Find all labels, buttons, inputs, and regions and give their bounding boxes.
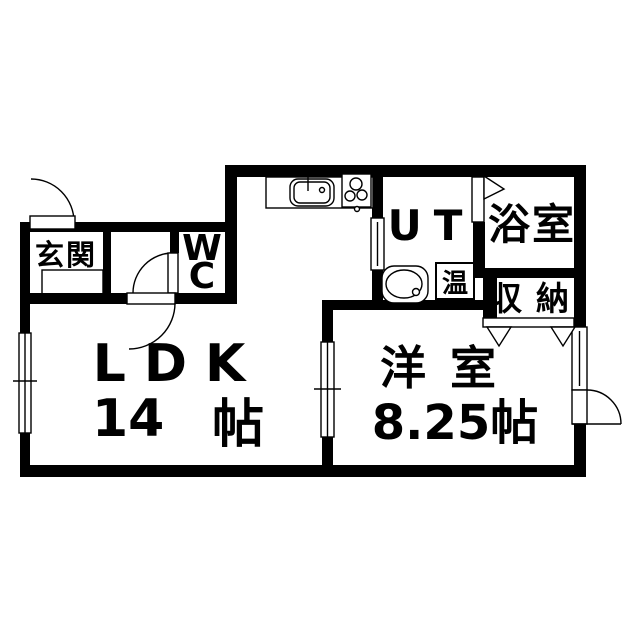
wc-letter: C xyxy=(189,263,215,291)
water-heater-label: 温 xyxy=(442,263,468,300)
room-size-ldk: 14 帖 xyxy=(92,392,264,446)
water-heater-box: 温 xyxy=(435,262,475,300)
window-left-icon xyxy=(13,333,37,433)
sink-drain xyxy=(320,188,325,193)
ldk-size-unit: 帖 xyxy=(212,382,264,457)
floor-plan: 玄関 W C LDK 14 帖 UT 浴室 温 収納 洋室 8.25帖 xyxy=(0,0,639,640)
western-door-leaf xyxy=(572,390,587,424)
ldk-size-value: 14 xyxy=(92,389,164,449)
room-label-bath: 浴室 xyxy=(488,197,576,245)
wc-door-icon xyxy=(133,253,178,293)
western-door-arc xyxy=(587,390,621,424)
wc-door-leaf xyxy=(168,253,178,293)
room-label-ut: UT xyxy=(385,202,477,248)
window-partition-icon xyxy=(314,342,341,437)
kitchen-counter-icon xyxy=(266,168,373,212)
window-right-icon xyxy=(572,327,587,390)
western-door-icon xyxy=(572,390,621,424)
room-label-wc: W C xyxy=(183,232,221,294)
entrance-door-icon xyxy=(30,179,75,229)
plan-symbols xyxy=(0,0,639,640)
kitchen-sliding-door-icon xyxy=(371,218,384,270)
wc-door-arc xyxy=(133,253,173,293)
room-size-western: 8.25帖 xyxy=(366,392,544,444)
entrance-door-leaf xyxy=(30,216,75,229)
faucet-icon xyxy=(303,168,313,175)
washbasin-icon xyxy=(382,266,428,303)
washbasin-drain xyxy=(413,289,420,296)
room-label-genkan: 玄関 xyxy=(34,236,98,270)
room-label-closet: 収納 xyxy=(493,276,579,316)
stove-knob xyxy=(355,207,360,212)
hall-door-leaf xyxy=(127,293,175,304)
